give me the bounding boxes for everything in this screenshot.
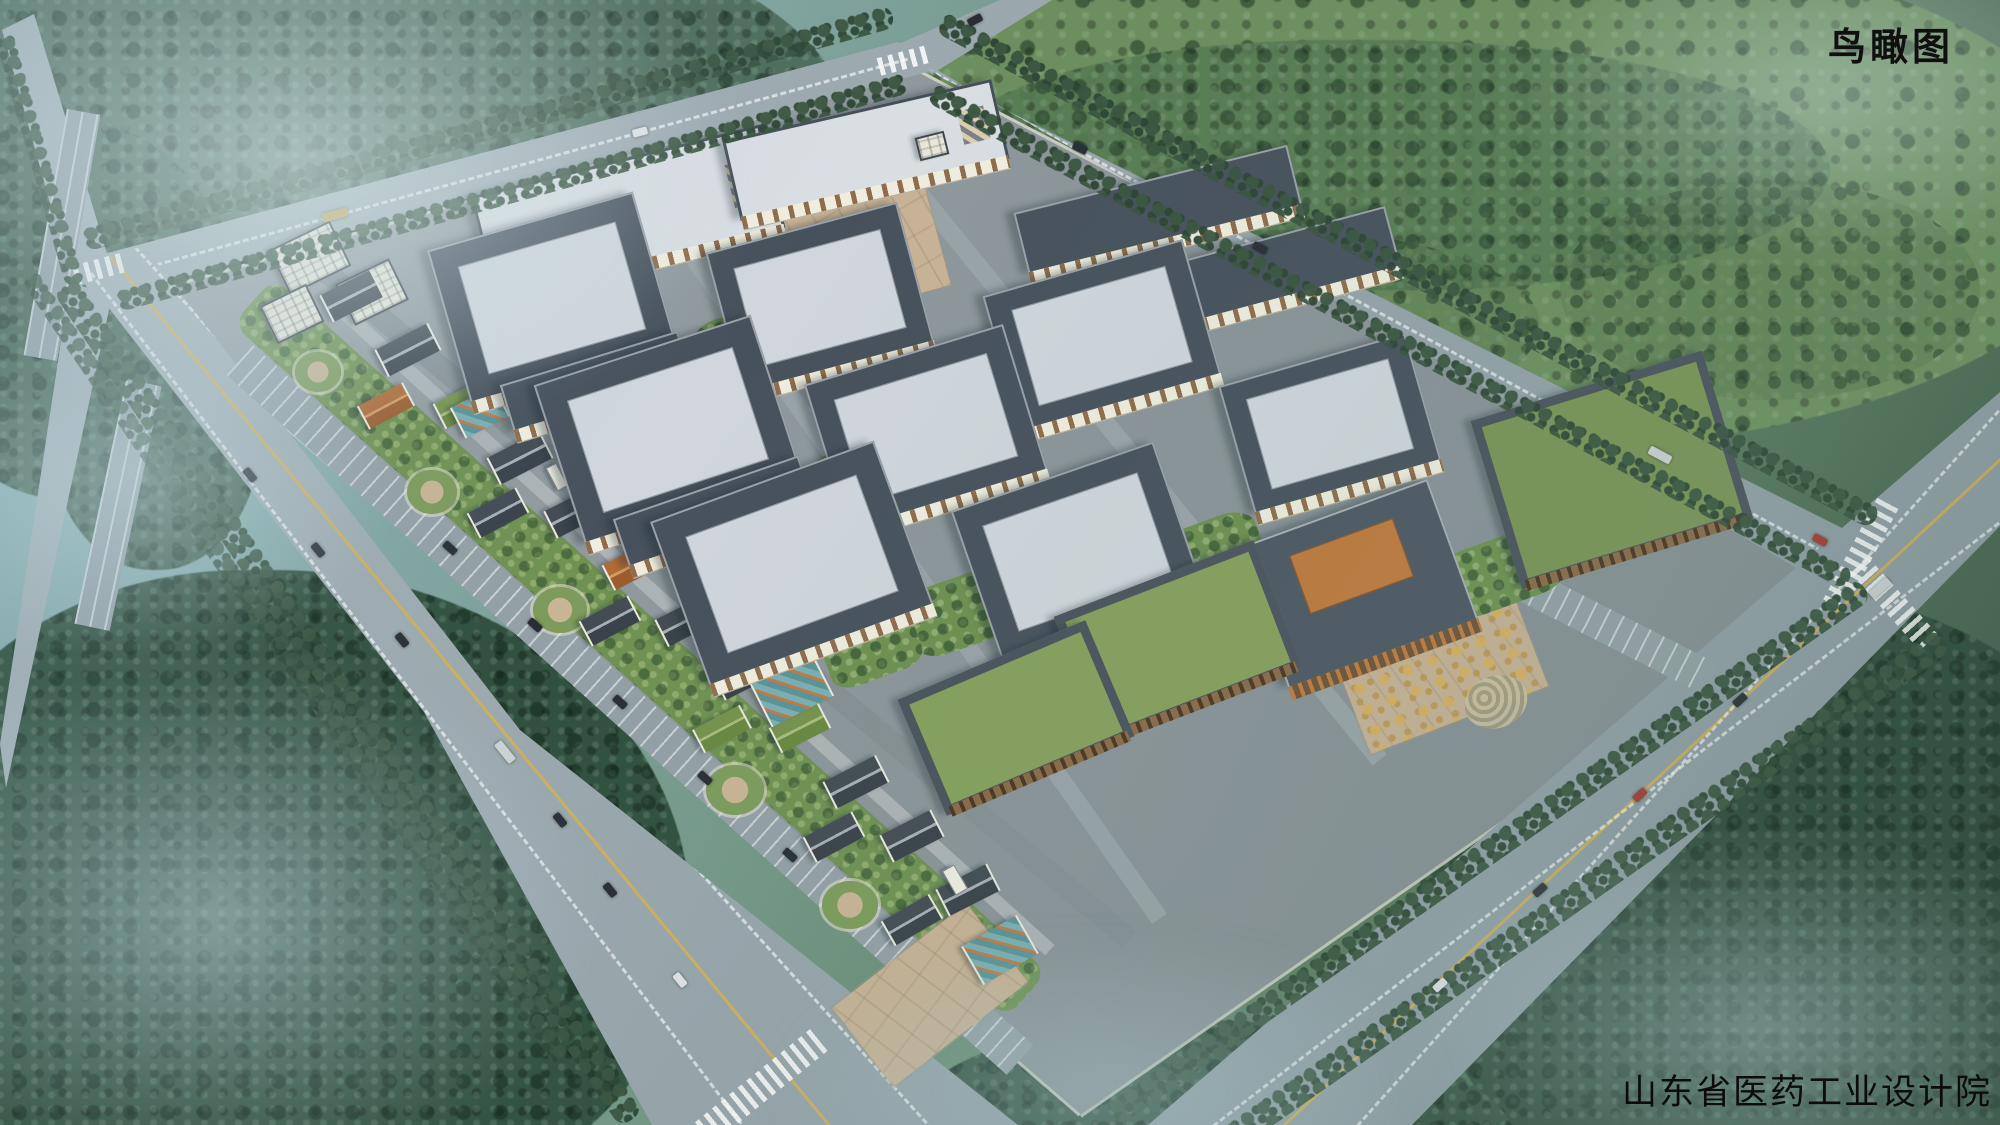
view-title: 鸟瞰图 bbox=[1828, 16, 1954, 71]
mist-overlay bbox=[760, 930, 1460, 1125]
design-institute-credit: 山东省医药工业设计院 bbox=[1622, 1064, 1992, 1115]
mist-overlay bbox=[0, 640, 600, 1125]
mist-overlay bbox=[0, 260, 400, 680]
aerial-rendering: 鸟瞰图 山东省医药工业设计院 bbox=[0, 0, 2000, 1125]
